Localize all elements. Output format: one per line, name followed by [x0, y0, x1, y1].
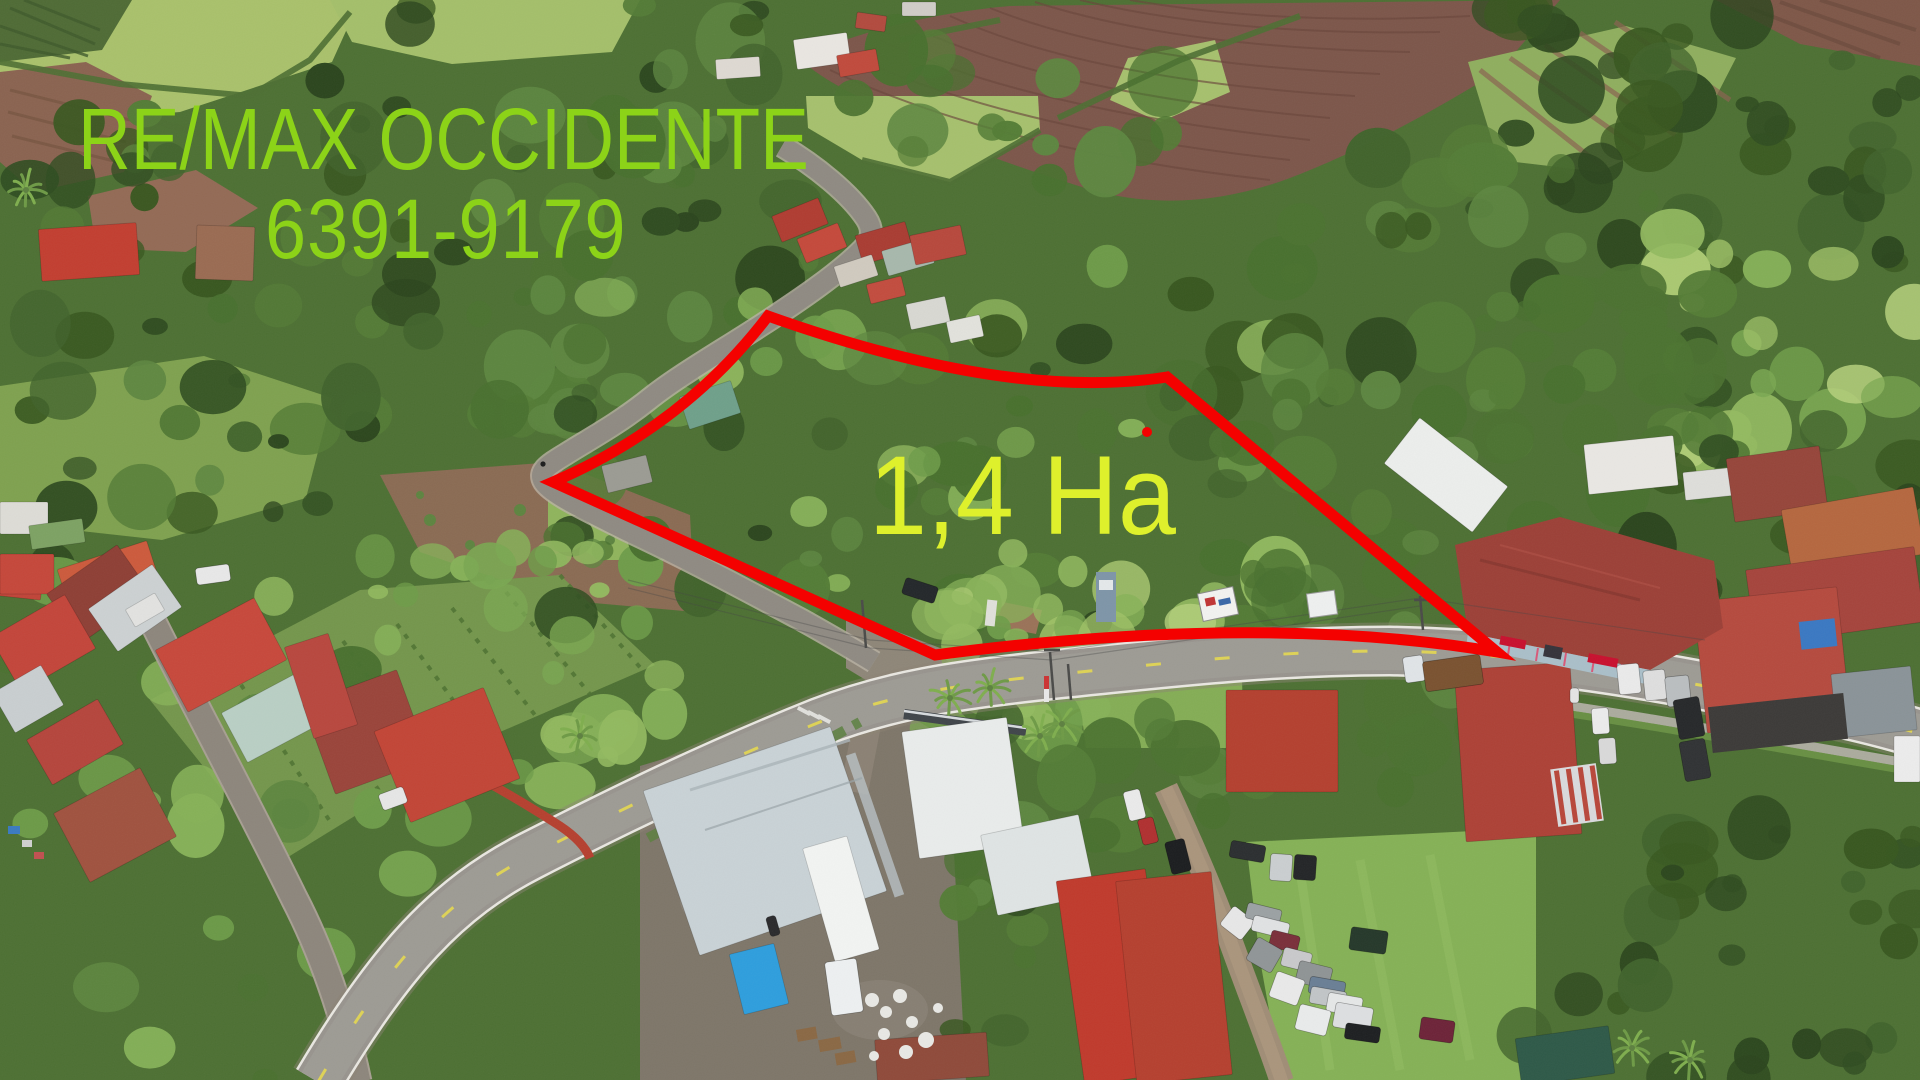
- brand-watermark: RE/MAX OCCIDENTE: [78, 96, 809, 183]
- area-label: 1,4 Ha: [869, 440, 1176, 552]
- phone-watermark: 6391-9179: [265, 187, 626, 271]
- aerial-photo: RE/MAX OCCIDENTE 6391-9179 1,4 Ha: [0, 0, 1920, 1080]
